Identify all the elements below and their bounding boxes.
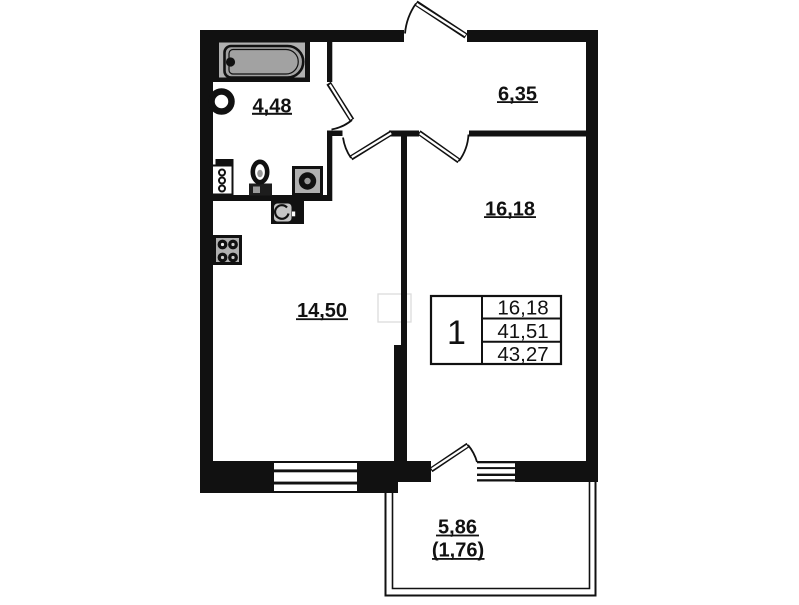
svg-text:41,51: 41,51 <box>497 320 548 343</box>
svg-text:43,27: 43,27 <box>497 343 548 366</box>
svg-text:1: 1 <box>447 314 466 352</box>
svg-text:16,18: 16,18 <box>497 297 548 320</box>
